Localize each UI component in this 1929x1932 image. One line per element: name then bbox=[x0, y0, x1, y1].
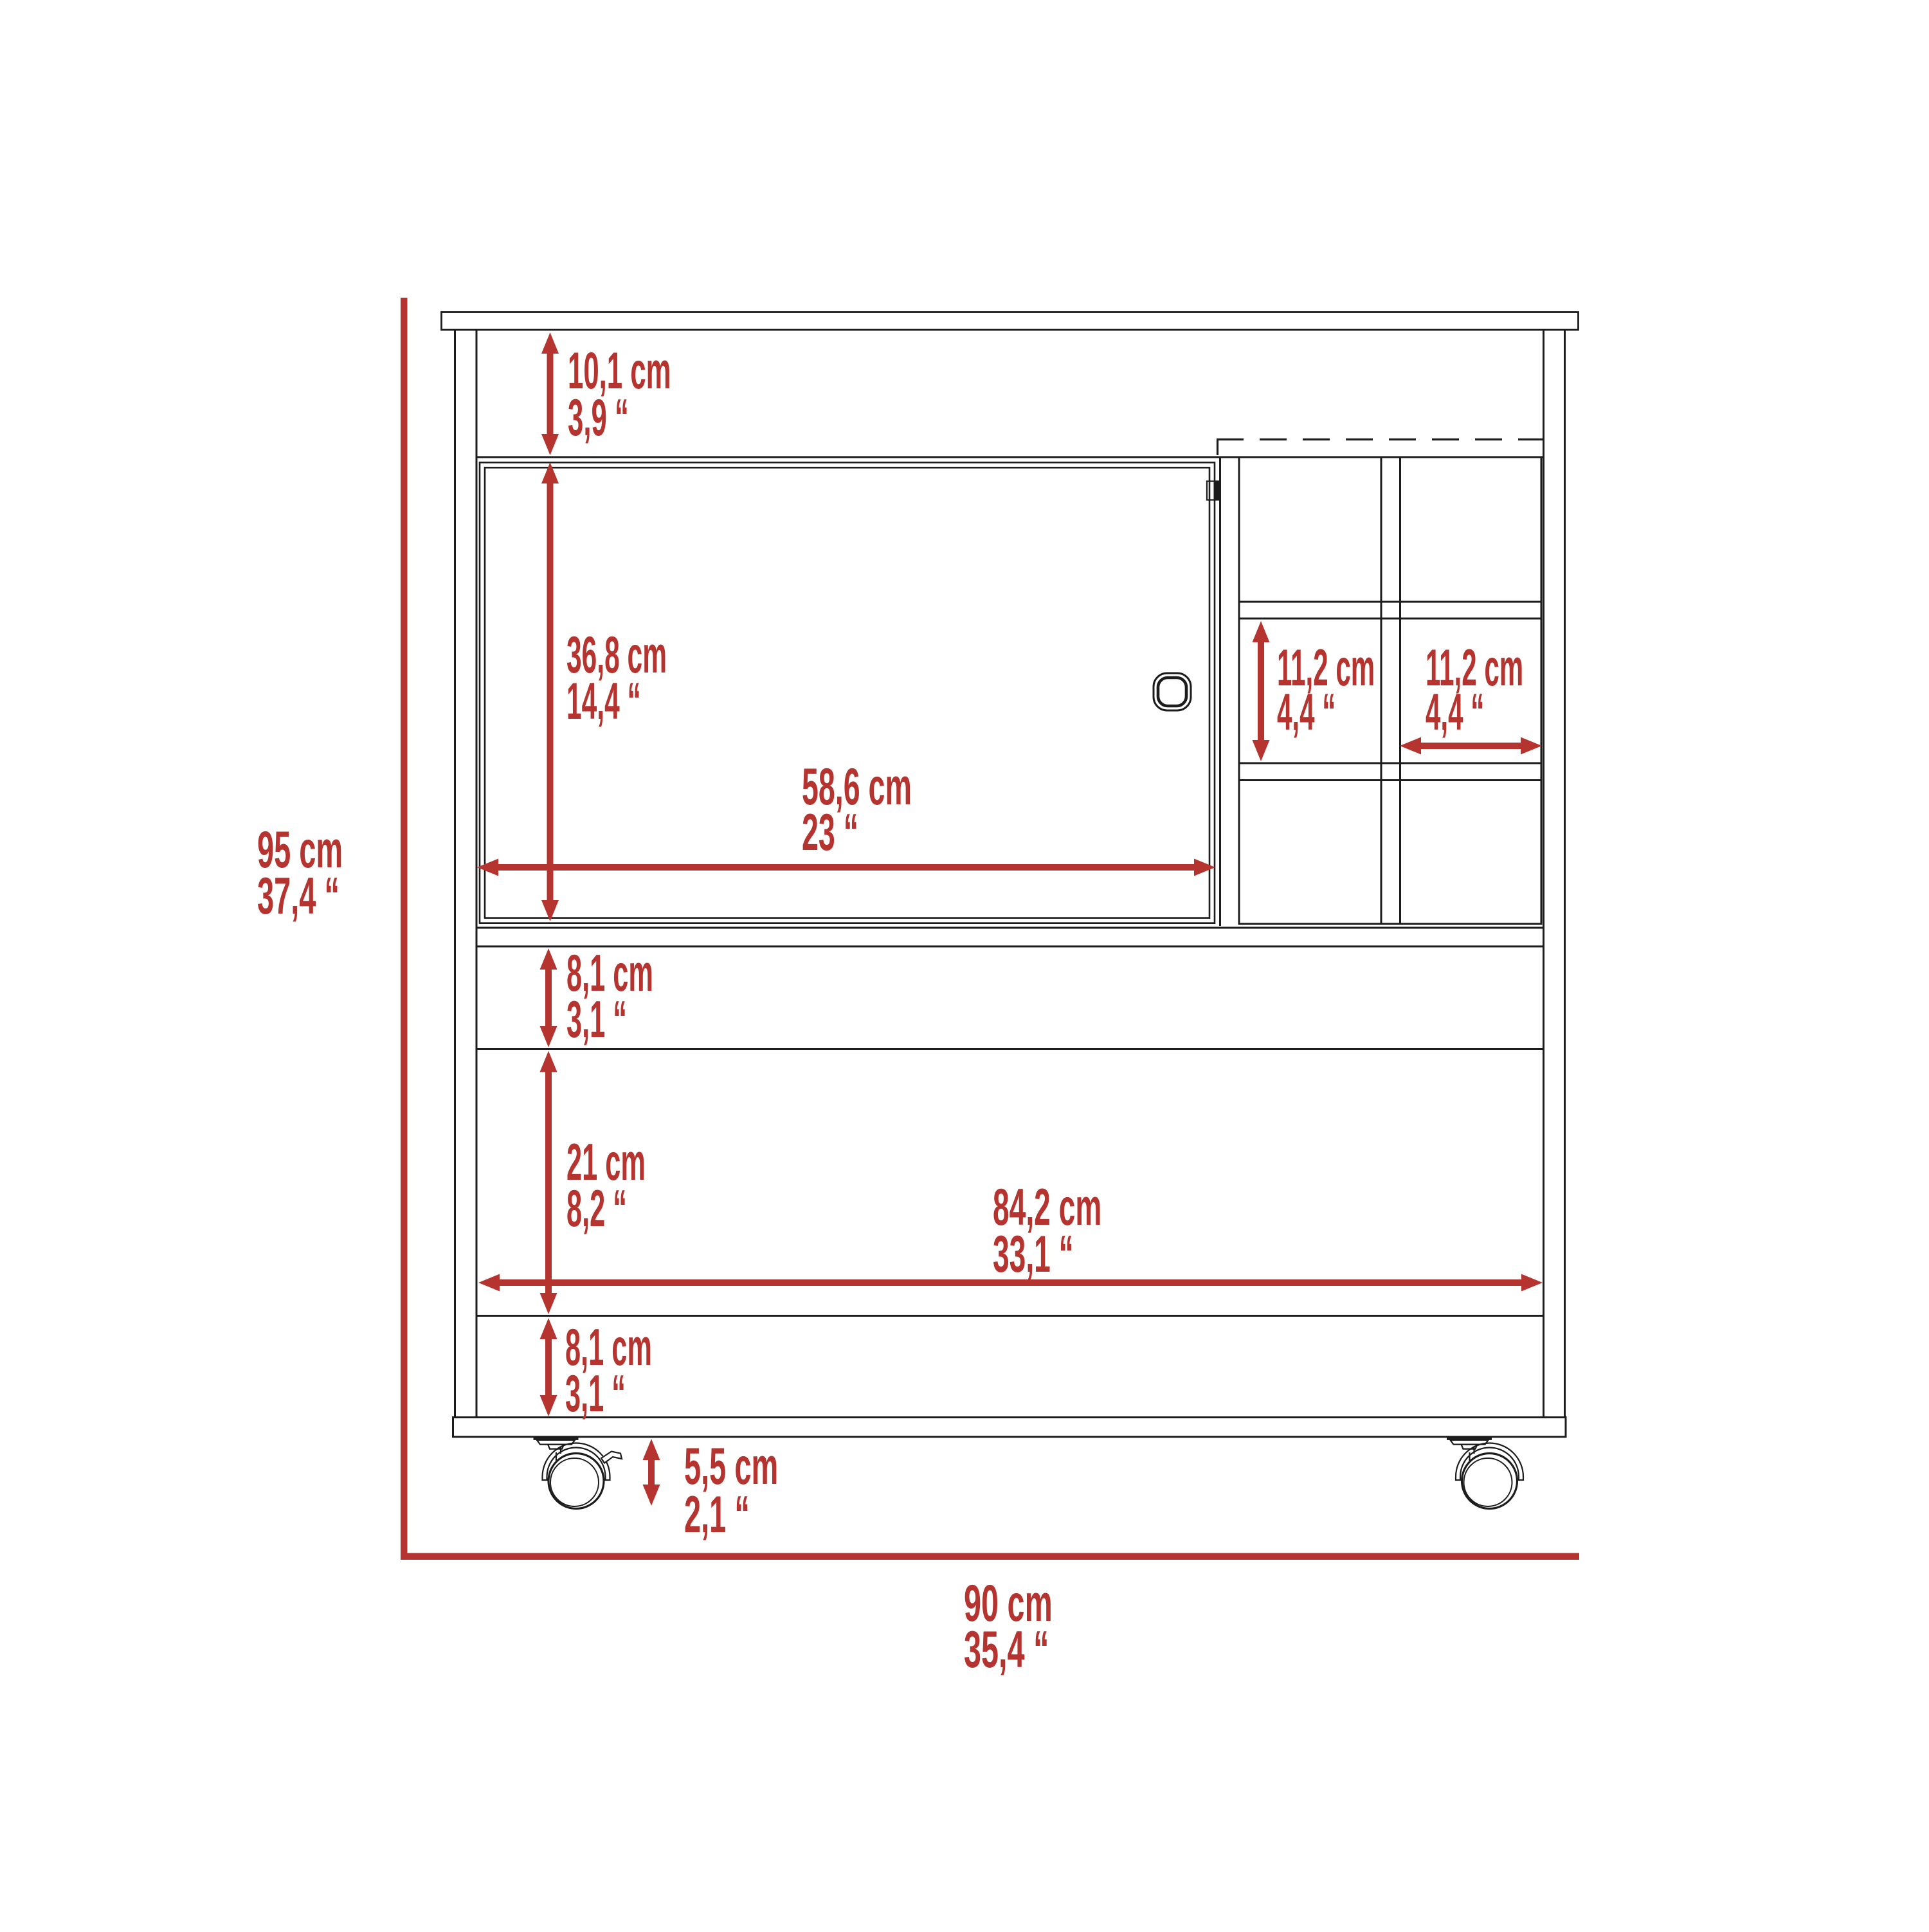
svg-text:2,1 “: 2,1 “ bbox=[684, 1486, 750, 1544]
svg-text:3,1 “: 3,1 “ bbox=[566, 989, 627, 1048]
svg-text:35,4 “: 35,4 “ bbox=[964, 1621, 1049, 1679]
svg-text:33,1 “: 33,1 “ bbox=[993, 1224, 1074, 1283]
svg-text:14,4 “: 14,4 “ bbox=[566, 671, 641, 730]
svg-text:4,4 “: 4,4 “ bbox=[1277, 683, 1336, 741]
svg-text:3,9 “: 3,9 “ bbox=[568, 388, 629, 447]
svg-text:8,2 “: 8,2 “ bbox=[566, 1178, 627, 1237]
svg-text:23 “: 23 “ bbox=[802, 802, 858, 861]
svg-text:4,4 “: 4,4 “ bbox=[1426, 683, 1484, 741]
svg-text:3,1 “: 3,1 “ bbox=[565, 1364, 626, 1422]
svg-text:37,4 “: 37,4 “ bbox=[257, 867, 340, 926]
